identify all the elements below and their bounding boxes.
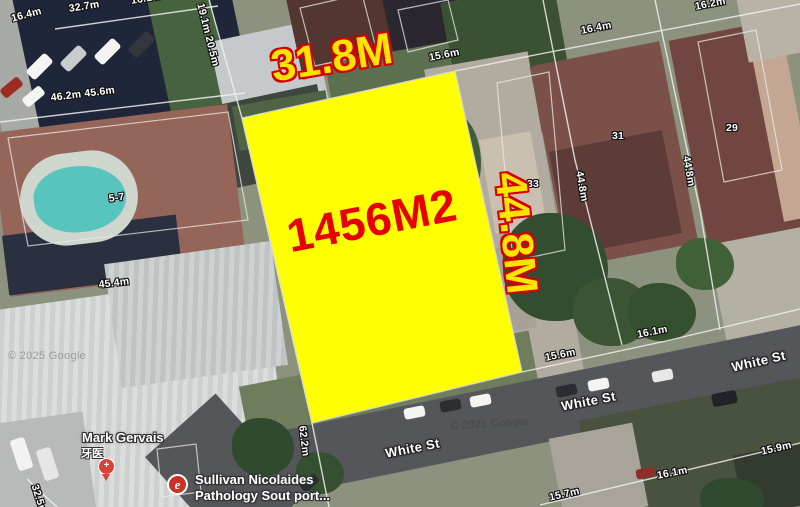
measurement-label: 15.6m bbox=[428, 46, 461, 64]
map-pin-stem-icon bbox=[102, 474, 110, 481]
google-attribution: © 2025 Google bbox=[8, 350, 86, 362]
measurement-label: 62.2m bbox=[296, 425, 312, 457]
measurement-label: 16.1m bbox=[636, 323, 669, 341]
street-label: White St bbox=[730, 348, 787, 375]
measurement-label: 16.1m bbox=[130, 0, 162, 7]
measurement-label: 16.1m bbox=[656, 464, 689, 482]
place-label-mark-gervais[interactable]: Mark Gervais bbox=[82, 430, 164, 445]
measurement-label: 29 bbox=[726, 122, 738, 134]
map-pin-icon[interactable]: + bbox=[98, 458, 115, 475]
measurement-label: 32.7m bbox=[68, 0, 100, 15]
place-sublabel-mark-gervais: 牙医 bbox=[81, 445, 103, 461]
measurement-label: 45.4m bbox=[98, 275, 130, 291]
parcel-depth-dimension: 44.8M bbox=[487, 170, 544, 296]
satellite-map[interactable]: 16.4m32.7m16.1m19.1m 20.5m46.2m 45.6m5-7… bbox=[0, 0, 800, 507]
place-label-pathology-line2: Pathology Sout port... bbox=[195, 488, 330, 503]
measurement-label: 15.6m bbox=[544, 346, 577, 364]
measurement-label: 16.4m bbox=[580, 19, 613, 37]
measurement-label: 46.2m 45.6m bbox=[50, 84, 116, 104]
place-label-pathology-line1[interactable]: Sullivan Nicolaides bbox=[195, 472, 314, 487]
measurement-label: 32.5m bbox=[29, 483, 50, 507]
measurement-label: 15.7m bbox=[548, 485, 581, 504]
street-label: White St bbox=[384, 435, 441, 460]
street-label: White St bbox=[560, 388, 617, 413]
measurement-label: 5-7 bbox=[108, 191, 125, 205]
measurement-label: 15.9m bbox=[760, 439, 793, 458]
pathology-pin-icon[interactable]: e bbox=[167, 474, 188, 495]
measurement-label: 16.2m bbox=[694, 0, 727, 13]
measurement-label: 44.8m bbox=[573, 170, 590, 202]
measurement-label: 16.4m bbox=[10, 5, 43, 25]
measurement-label: 31 bbox=[612, 130, 624, 142]
measurement-label: 19.1m 20.5m bbox=[194, 2, 221, 68]
measurement-label: 44.8m bbox=[680, 155, 697, 187]
